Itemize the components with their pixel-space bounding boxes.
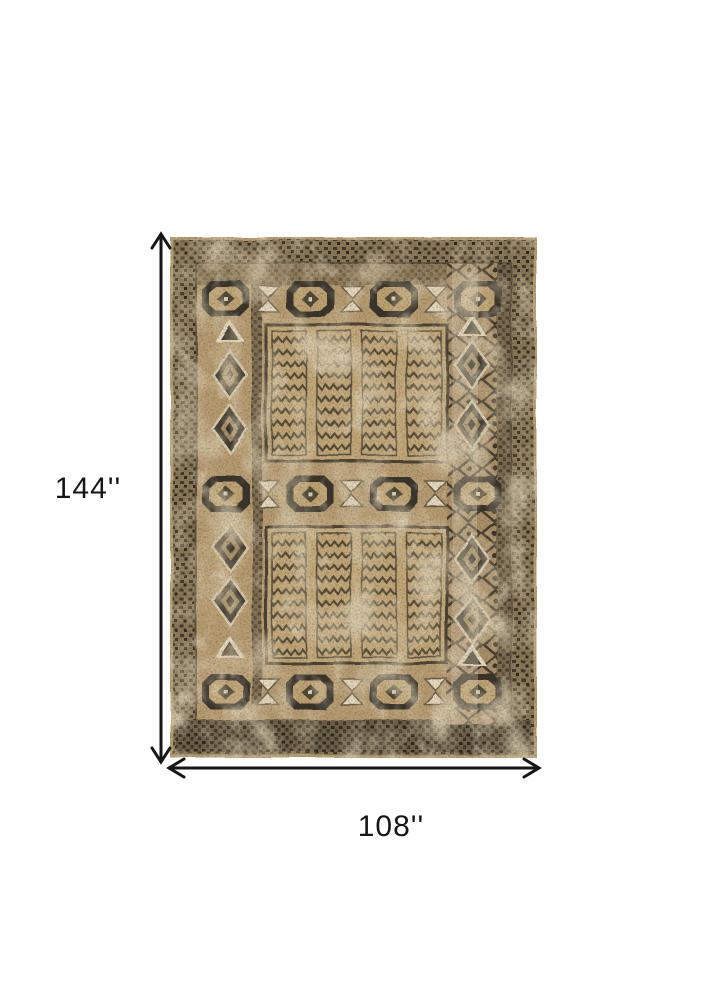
height-dimension-label: 144'' [55, 474, 122, 504]
height-dimension-arrow [152, 234, 170, 762]
rug-graphic [170, 237, 537, 758]
rug-image [170, 237, 537, 758]
rug-body [170, 237, 537, 758]
width-dimension-label: 108'' [358, 812, 425, 842]
product-dimension-diagram: 144'' 108'' [0, 0, 708, 1000]
rug-distress-texture [170, 237, 537, 758]
width-dimension-arrow [169, 759, 539, 777]
